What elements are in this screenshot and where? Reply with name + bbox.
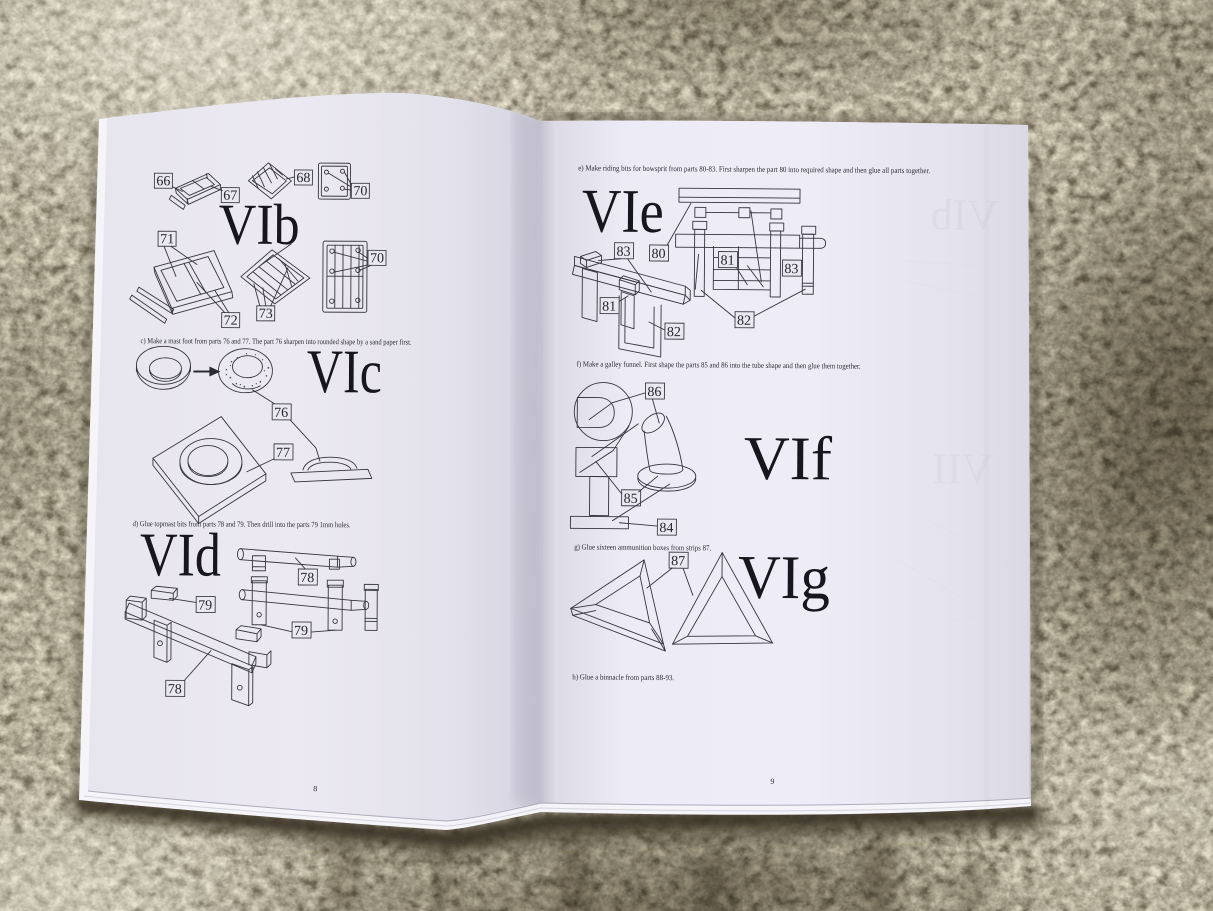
svg-text:85: 85	[624, 492, 638, 507]
svg-text:76: 76	[274, 406, 288, 421]
svg-text:VIc: VIc	[307, 338, 382, 406]
svg-text:87: 87	[671, 554, 685, 569]
svg-text:68: 68	[296, 171, 310, 186]
svg-text:VIf: VIf	[744, 425, 833, 494]
svg-text:80: 80	[651, 247, 665, 262]
svg-text:70: 70	[370, 251, 384, 266]
svg-text:84: 84	[659, 521, 673, 536]
svg-text:82: 82	[737, 314, 751, 329]
svg-text:71: 71	[160, 232, 174, 247]
svg-text:72: 72	[224, 314, 238, 329]
svg-text:73: 73	[259, 307, 273, 322]
svg-text:83: 83	[616, 245, 630, 260]
svg-text:81: 81	[602, 300, 616, 315]
svg-text:VIg: VIg	[738, 544, 831, 613]
svg-text:70: 70	[353, 184, 367, 199]
svg-text:VIb: VIb	[930, 190, 999, 240]
svg-text:83: 83	[784, 262, 798, 277]
svg-text:78: 78	[168, 682, 182, 697]
svg-text:79: 79	[294, 624, 308, 639]
svg-text:82: 82	[667, 325, 681, 340]
svg-text:77: 77	[276, 446, 290, 461]
svg-text:81: 81	[720, 254, 734, 269]
svg-text:78: 78	[300, 571, 314, 586]
svg-text:79: 79	[198, 598, 212, 613]
svg-text:VII: VII	[932, 444, 993, 493]
svg-text:VId: VId	[140, 521, 221, 589]
svg-text:g) Glue sixteen ammunition box: g) Glue sixteen ammunition boxes from st…	[574, 542, 711, 552]
svg-text:66: 66	[156, 174, 170, 189]
svg-text:8: 8	[313, 784, 317, 793]
svg-text:VIe: VIe	[582, 177, 665, 246]
svg-text:9: 9	[770, 777, 774, 786]
svg-text:h) Glue a binnacle from parts: h) Glue a binnacle from parts 88-93.	[572, 672, 674, 682]
svg-text:VIb: VIb	[219, 192, 300, 257]
svg-text:86: 86	[647, 385, 661, 400]
